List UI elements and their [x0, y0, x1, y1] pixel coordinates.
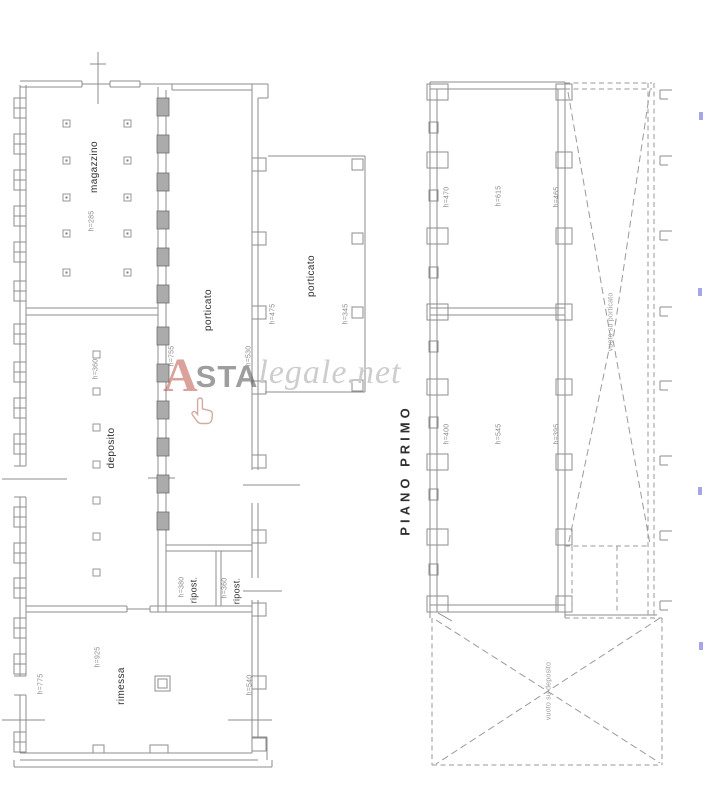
height-label-magazzino: h=285	[89, 211, 96, 232]
room-label-rimessa: rimessa	[117, 667, 127, 705]
height-label-top-room-left: h=470	[444, 187, 451, 208]
height-label-rimessa-left: h=775	[38, 674, 45, 695]
deposito-columns	[93, 351, 100, 576]
buttress	[150, 745, 168, 753]
edge-artifact-mark	[699, 642, 703, 650]
outer-pilaster-marks	[660, 90, 672, 610]
height-label-ripost-2: h=360	[222, 578, 229, 599]
height-label-bottom-room-left: h=400	[444, 424, 451, 445]
height-label-porticato-right: h=530	[246, 346, 253, 367]
floor-plan-drawing	[0, 0, 704, 800]
edge-artifact-mark	[698, 288, 702, 296]
height-label-porticato-left: h=755	[169, 346, 176, 367]
edge-artifact-mark	[698, 487, 702, 495]
void-label-porticato: vuoto su porticato	[608, 293, 615, 352]
height-label-bottom-room-center: h=545	[496, 424, 503, 445]
height-label-bottom-room-right: h=395	[554, 424, 561, 445]
ground-floor-windows	[14, 98, 363, 753]
internal-wall-windows	[157, 98, 169, 530]
height-label-deposito: h=360	[93, 359, 100, 380]
height-label-annex-right: h=345	[343, 304, 350, 325]
floor-title-piano-primo: PIANO PRIMO	[399, 404, 412, 535]
edge-artifact-mark	[699, 112, 703, 120]
height-label-ripost-1: h=380	[179, 577, 186, 598]
room-label-annex-porticato: porticato	[307, 255, 317, 297]
height-label-top-room-center: h=615	[496, 186, 503, 207]
annex-pillars	[352, 159, 363, 391]
room-label-magazzino: magazzino	[90, 141, 100, 193]
right-wall-pilasters	[252, 158, 266, 751]
rimessa-pillar	[155, 676, 170, 691]
void-label-deposito: vuoto su deposito	[546, 662, 553, 720]
room-label-deposito: deposito	[107, 427, 117, 468]
room-label-ripost-2: ripost.	[233, 578, 242, 605]
floor-plan-page: magazzino h=285 deposito h=360 porticato…	[0, 0, 704, 800]
height-label-rimessa-right: h=540	[247, 675, 254, 696]
height-label-annex-left: h=475	[270, 304, 277, 325]
height-label-rimessa: h=925	[95, 647, 102, 668]
height-label-top-room-right: h=465	[554, 187, 561, 208]
ground-floor-walls	[2, 52, 365, 767]
first-floor-walls	[427, 82, 672, 621]
buttress	[93, 745, 104, 753]
room-label-porticato: porticato	[204, 289, 214, 331]
room-label-ripost-1: ripost.	[190, 577, 199, 604]
